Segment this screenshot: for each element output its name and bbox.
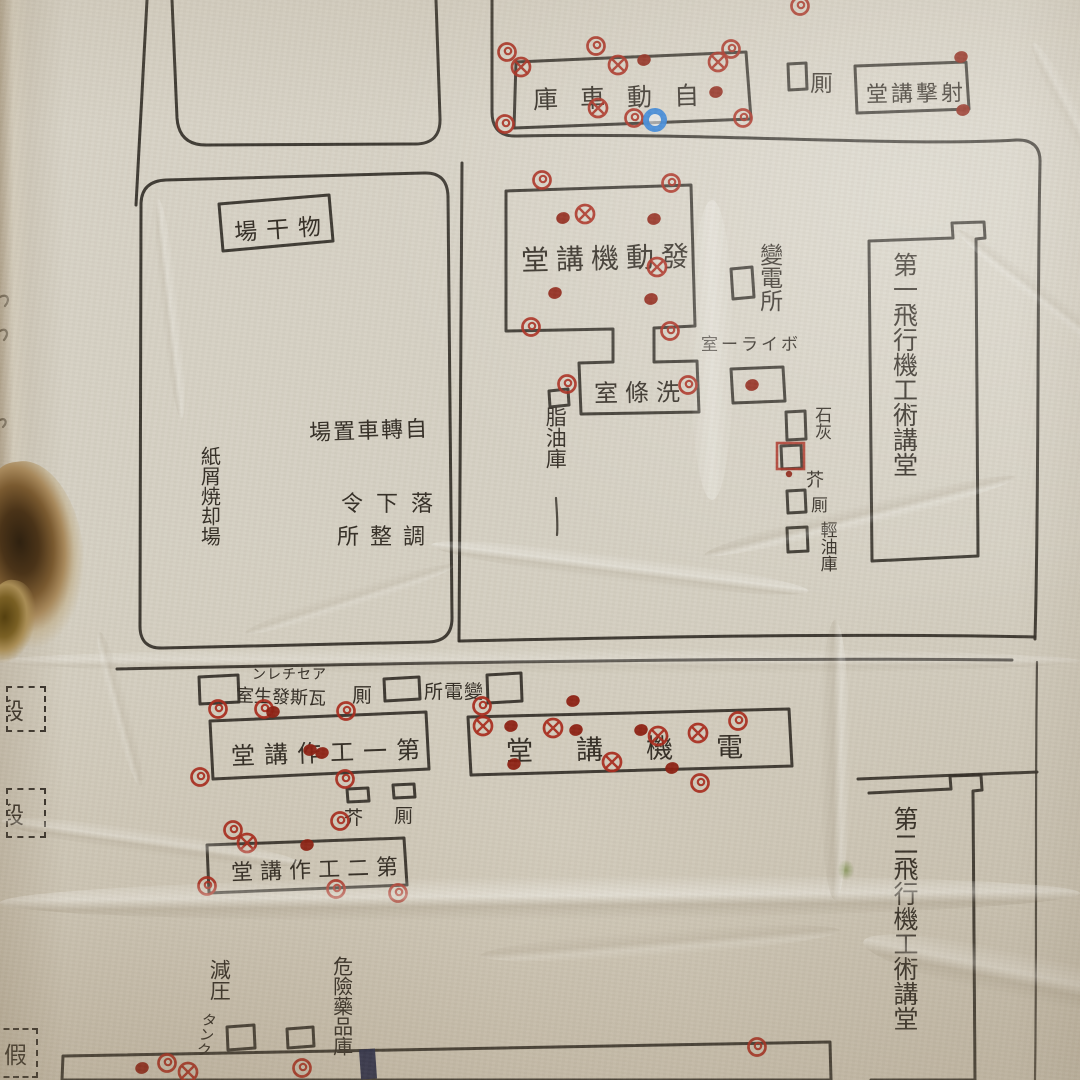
mark-dot — [633, 723, 649, 738]
mark-spiral — [328, 881, 345, 898]
mark-spiral — [792, 0, 809, 15]
mark-spiral — [192, 769, 209, 786]
annotation-marks-layer — [0, 0, 1080, 1080]
mark-spiral — [735, 110, 752, 127]
mark-cross — [648, 258, 666, 276]
mark-square — [777, 443, 804, 469]
mark-spiral — [159, 1055, 176, 1072]
mark-dot — [643, 292, 659, 307]
mark-blue — [646, 111, 664, 129]
mark-spiral — [626, 110, 643, 127]
mark-spiral — [225, 822, 242, 839]
mark-cross — [474, 717, 492, 735]
map-photo: 庫車動自 厠 堂講撃射 場干物 堂講機動發 變電所 室ーライボ 室條洗 脂油庫 … — [0, 0, 1080, 1080]
mark-spiral — [749, 1039, 766, 1056]
mark-dot — [708, 85, 724, 100]
mark-cross — [689, 724, 707, 742]
mark-spiral — [390, 885, 407, 902]
mark-spiral — [294, 1060, 311, 1077]
mark-dot — [955, 103, 971, 118]
mark-spiral — [332, 813, 349, 830]
mark-cross — [512, 58, 530, 76]
mark-spiral — [534, 172, 551, 189]
mark-spiral — [662, 323, 679, 340]
mark-navy — [359, 1048, 377, 1079]
mark-spiral — [497, 116, 514, 133]
mark-spiral — [663, 175, 680, 192]
mark-dot — [744, 378, 760, 393]
mark-cross — [609, 56, 627, 74]
mark-spiral — [474, 698, 491, 715]
mark-cross — [576, 205, 594, 223]
mark-cross — [238, 834, 256, 852]
mark-dot — [664, 761, 680, 776]
mark-spiral — [559, 376, 576, 393]
mark-dot — [555, 211, 571, 226]
mark-spiral — [692, 775, 709, 792]
mark-dot — [547, 286, 563, 301]
mark-cross — [603, 753, 621, 771]
mark-cross — [179, 1063, 197, 1080]
mark-spiral — [730, 713, 747, 730]
mark-spiral — [680, 377, 697, 394]
mark-dot — [506, 757, 522, 772]
mark-dot — [134, 1061, 150, 1076]
mark-dot — [646, 212, 662, 227]
mark-spiral — [338, 703, 355, 720]
mark-spiral — [337, 771, 354, 788]
mark-dot — [565, 694, 581, 709]
mark-spiral — [499, 44, 516, 61]
mark-spiral — [588, 38, 605, 55]
mark-cross — [589, 99, 607, 117]
mark-cross — [649, 727, 667, 745]
mark-cross — [544, 719, 562, 737]
mark-dot — [953, 50, 969, 65]
mark-dot — [568, 723, 584, 738]
mark-dot — [299, 838, 315, 853]
mark-cross — [709, 53, 727, 71]
mark-spiral — [210, 701, 227, 718]
mark-dot_s — [786, 471, 792, 477]
mark-spiral — [199, 878, 216, 895]
mark-spiral — [523, 319, 540, 336]
mark-dot — [503, 719, 519, 734]
mark-dot — [636, 53, 652, 68]
